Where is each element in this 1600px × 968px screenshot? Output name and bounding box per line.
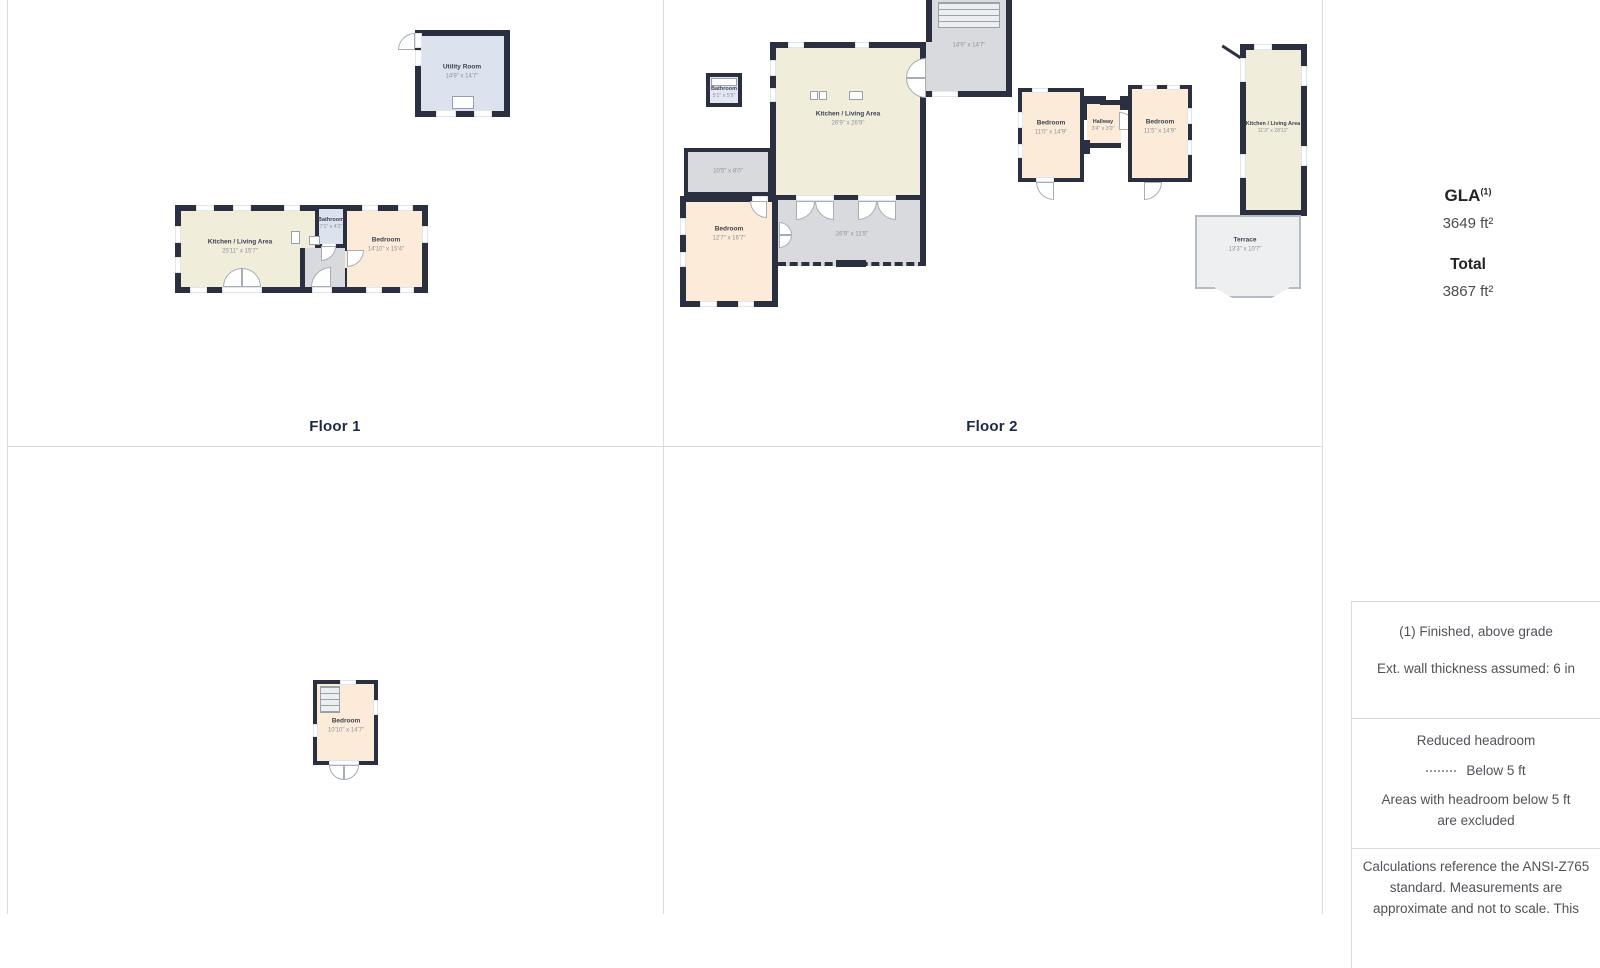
wall-segment [300,248,305,287]
window [770,88,776,102]
window [175,257,181,273]
note-card-headroom: Reduced headroom Below 5 ft Areas with h… [1352,718,1600,848]
window [1254,44,1272,50]
terrace-outline [1195,215,1301,289]
window [340,680,356,685]
window [738,301,754,307]
window [313,724,318,737]
window [680,218,686,235]
grayroom-outline [684,148,772,196]
window [373,700,378,715]
window [680,252,686,267]
dotted-line-swatch [1426,770,1456,772]
door-arc [1036,182,1054,200]
fixture [849,91,863,100]
window [1187,140,1192,155]
gla-label: GLA [1445,186,1481,205]
stairs [938,2,1000,28]
grid-line-middle [663,0,664,914]
wall-segment [1100,100,1122,105]
gla-heading: GLA(1) [1340,186,1596,206]
door-arc [329,765,344,780]
door-arc [344,765,359,780]
headroom-note: Areas with headroom below 5 ft are exclu… [1371,790,1581,832]
window [1032,88,1048,93]
floor2-label: Floor 2 [966,418,1017,435]
area-summary: GLA(1) 3649 ft² Total 3867 ft² [1340,186,1596,300]
window [233,205,251,211]
headroom-title: Reduced headroom [1358,731,1594,752]
window [1240,154,1246,178]
note-card-calculations: Calculations reference the ANSI-Z765 sta… [1352,848,1600,968]
window [1240,58,1246,82]
window [415,50,422,66]
window [436,110,456,117]
door-arc [1144,182,1162,200]
floor1-label: Floor 1 [309,418,360,435]
appliance-fixture [291,231,300,244]
note-card-grade: (1) Finished, above grade Ext. wall thic… [1352,601,1600,718]
note-finished: (1) Finished, above grade [1358,622,1594,643]
window [700,301,717,307]
note-wall-thickness: Ext. wall thickness assumed: 6 in [1358,659,1594,680]
total-label: Total [1340,256,1596,274]
window [1018,144,1023,158]
wall-segment [1087,143,1121,148]
window [1301,66,1307,86]
kitchen2-outline [1240,44,1307,216]
headroom-legend: Below 5 ft [1358,761,1594,782]
door-gap [222,287,262,293]
terrace-bay [1213,287,1291,298]
bedroom-fill [345,211,422,287]
floorplan-report: Utility Room 14'9" x 14'7" Kitchen / Liv… [0,0,1600,914]
wall-segment [1082,140,1090,154]
wall-segment [1120,96,1128,110]
stove-fixture [309,236,320,245]
window [1018,112,1023,128]
door-arc [398,33,415,50]
total-value: 3867 ft² [1340,283,1596,300]
grid-line-sidebar [1322,0,1323,914]
calculations-note: Calculations reference the ANSI-Z765 sta… [1362,857,1590,920]
window [1142,85,1157,90]
sidebar-notes: (1) Finished, above grade Ext. wall thic… [1351,601,1600,968]
window [1187,108,1192,124]
window [855,42,869,48]
window [284,205,300,211]
window [1301,146,1307,166]
window [398,205,413,211]
tub-fixture [711,78,737,86]
door-gap [312,287,332,293]
window [788,42,804,48]
window [422,226,428,243]
window [400,287,414,293]
gla-value: 3649 ft² [1340,215,1596,232]
window [1167,85,1180,90]
gla-footnote-marker: (1) [1480,186,1491,196]
window [196,205,214,211]
window [474,110,492,117]
fixture [819,91,827,100]
wall-segment [920,200,926,266]
bedroom-b-outline [1128,85,1192,182]
stairs [320,686,340,713]
fixture [810,91,818,100]
headroom-below-label: Below 5 ft [1466,763,1525,778]
grid-line-left [7,0,8,914]
window [362,205,378,211]
sink-fixture [452,96,474,109]
door-gap [415,33,422,48]
grid-line-horizontal [7,446,1322,447]
window [770,60,776,76]
window [175,226,181,243]
window [190,287,207,293]
floor2-main-outline [770,42,926,201]
wall-segment [1006,0,1012,97]
hallway-fill [1087,104,1121,148]
wall-segment [836,260,866,267]
window [366,287,382,293]
wall-segment [926,0,932,42]
door-gap [932,91,958,97]
bedroom-a-outline [1018,88,1084,182]
